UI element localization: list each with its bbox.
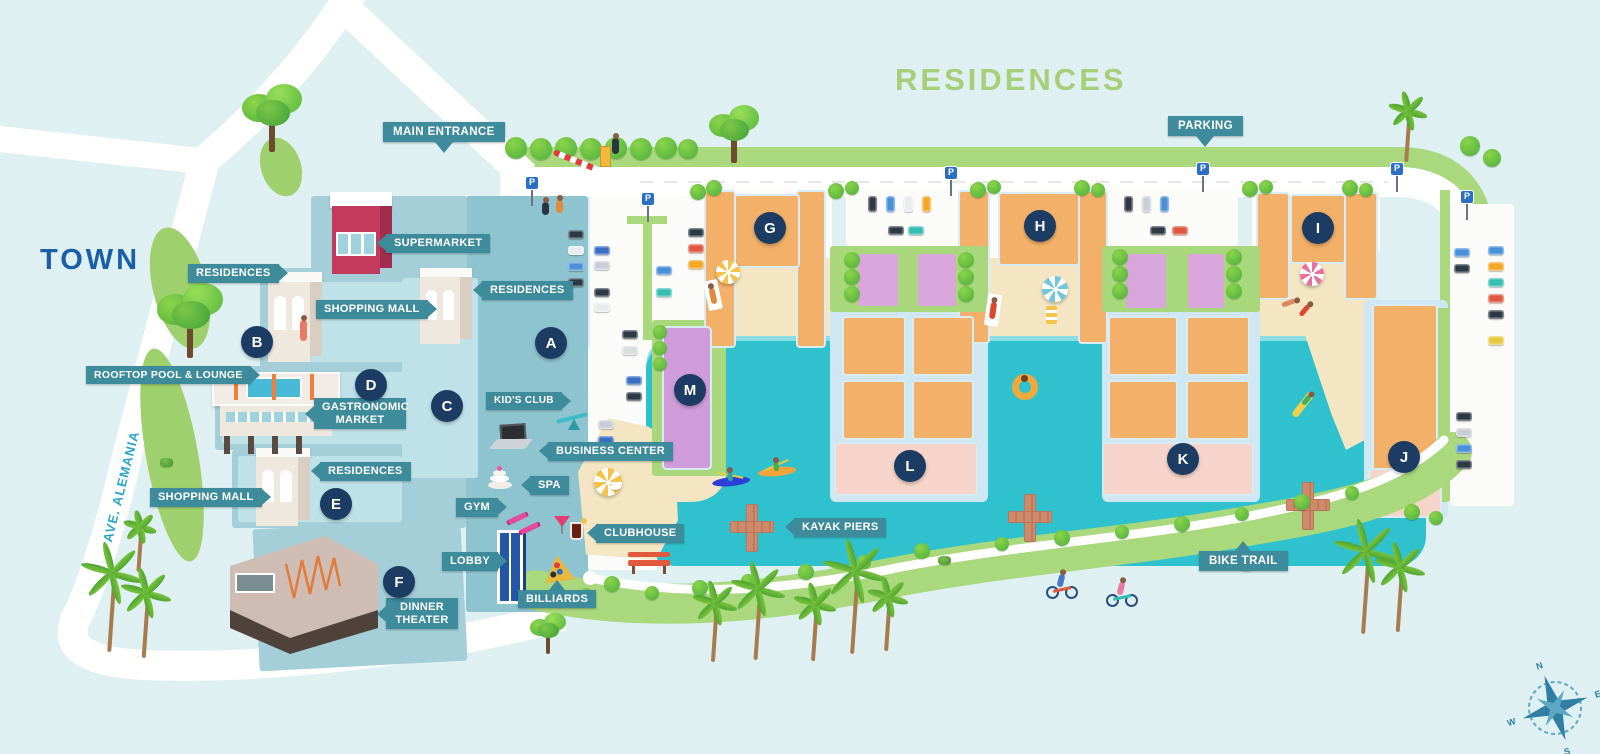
residence-building-l	[914, 318, 972, 374]
residence-building-k	[1188, 382, 1248, 438]
bush-icon	[1112, 249, 1128, 265]
bush-icon	[844, 252, 860, 268]
cyclist-icon	[1106, 584, 1140, 610]
main-entrance-flag: MAIN ENTRANCE	[383, 122, 505, 142]
bush-icon	[1112, 283, 1128, 299]
tree-icon	[709, 105, 760, 165]
parking-sign: P	[641, 192, 655, 222]
bush-icon	[958, 252, 974, 268]
spa-icon	[488, 466, 514, 490]
marker-h: H	[1024, 210, 1056, 242]
bush-icon	[530, 138, 552, 160]
marker-c: C	[431, 390, 463, 422]
bush-icon	[604, 576, 620, 592]
town-label: TOWN	[40, 244, 140, 277]
seagull-icon	[610, 484, 620, 490]
beach-umbrella-icon	[1042, 276, 1068, 302]
residence-building-l	[914, 382, 972, 438]
bush-icon	[1294, 494, 1310, 510]
car-icon	[868, 196, 877, 212]
beach-umbrella-icon	[716, 260, 740, 284]
grass-icon	[938, 556, 951, 565]
bush-icon	[1112, 266, 1128, 282]
car-icon	[656, 288, 672, 297]
label-kayak-piers: KAYAK PIERS	[794, 518, 886, 537]
bush-icon	[1226, 266, 1242, 282]
palm-tree-icon	[1372, 560, 1428, 634]
bush-icon	[1074, 180, 1090, 196]
car-icon	[594, 288, 610, 297]
pool-deck	[858, 254, 898, 306]
bush-icon	[1259, 180, 1273, 194]
car-icon	[904, 196, 913, 212]
bush-icon	[1345, 486, 1359, 500]
car-icon	[688, 228, 704, 237]
compass-w: W	[1506, 716, 1517, 728]
residence-building-i	[1258, 194, 1288, 298]
marker-l: L	[894, 450, 926, 482]
car-icon	[1488, 278, 1504, 287]
car-icon	[688, 260, 704, 269]
car-icon	[1488, 262, 1504, 271]
business-center-icon	[496, 424, 536, 454]
car-icon	[1456, 428, 1472, 437]
bush-icon	[828, 183, 844, 199]
car-icon	[1488, 246, 1504, 255]
parking-flag: PARKING	[1168, 116, 1243, 136]
bush-icon	[1054, 530, 1070, 546]
residence-building-k	[1110, 318, 1176, 374]
bush-icon	[1226, 283, 1242, 299]
car-icon	[922, 196, 931, 212]
label-lobby: LOBBY	[442, 552, 498, 571]
parking-sign: P	[1460, 190, 1474, 220]
bush-icon	[914, 543, 930, 559]
cyclist-icon	[1046, 576, 1080, 602]
marker-b: B	[241, 326, 273, 358]
parking-divider	[643, 222, 652, 340]
label-business-center: BUSINESS CENTER	[548, 442, 673, 461]
kayak-pier	[730, 504, 774, 552]
parking-lot-gh	[846, 188, 958, 246]
car-icon	[598, 420, 614, 429]
car-icon	[1160, 196, 1169, 212]
car-icon	[1150, 226, 1166, 235]
compass-rose: N E S W	[1507, 660, 1600, 754]
marker-m: M	[674, 374, 706, 406]
tree-icon	[242, 84, 302, 154]
car-icon	[1456, 460, 1472, 469]
bush-icon	[678, 139, 698, 159]
person-icon	[612, 138, 619, 154]
bush-icon	[653, 341, 667, 355]
marker-d: D	[355, 369, 387, 401]
marker-j: J	[1388, 441, 1420, 473]
bush-icon	[958, 286, 974, 302]
car-icon	[1142, 196, 1151, 212]
bush-icon	[1460, 136, 1480, 156]
bush-icon	[1359, 183, 1373, 197]
bike-trail-flag: BIKE TRAIL	[1199, 551, 1288, 571]
label-clubhouse: CLUBHOUSE	[596, 524, 684, 543]
car-icon	[1124, 196, 1133, 212]
lounge-chair-icon	[1046, 306, 1057, 324]
label-rooftop-pool-lounge: ROOFTOP POOL & LOUNGE	[86, 366, 251, 384]
bush-icon	[1342, 180, 1358, 196]
bush-icon	[1429, 511, 1443, 525]
palm-tree-icon	[1386, 104, 1430, 164]
car-icon	[622, 346, 638, 355]
label-dinner-theater: DINNER THEATER	[386, 598, 458, 629]
car-icon	[568, 262, 584, 271]
bush-icon	[995, 537, 1009, 551]
parking-sign: P	[1390, 162, 1404, 192]
bush-icon	[798, 564, 814, 580]
bush-icon	[970, 182, 986, 198]
bush-icon	[1404, 504, 1420, 520]
parking-sign: P	[525, 176, 539, 206]
bush-icon	[645, 586, 659, 600]
beach-umbrella-icon	[1300, 262, 1324, 286]
marker-i: I	[1302, 212, 1334, 244]
parking-divider	[1440, 190, 1450, 318]
residence-building-k	[1188, 318, 1248, 374]
bush-icon	[844, 269, 860, 285]
car-icon	[626, 376, 642, 385]
kayak-pier	[1008, 494, 1052, 542]
kids-club-icon	[556, 408, 590, 432]
label-spa: SPA	[530, 476, 569, 495]
beach-umbrella-icon	[594, 468, 622, 496]
bush-icon	[845, 181, 859, 195]
parking-sign: P	[944, 166, 958, 196]
gym-icon	[508, 512, 540, 538]
car-icon	[886, 196, 895, 212]
bush-icon	[580, 138, 602, 160]
car-icon	[568, 230, 584, 239]
bush-icon	[1235, 507, 1249, 521]
bush-icon	[958, 269, 974, 285]
tree-icon	[530, 613, 566, 655]
swim-ring	[1012, 374, 1038, 400]
car-icon	[1488, 310, 1504, 319]
label-gym: GYM	[456, 498, 498, 517]
bench-icon	[628, 552, 670, 574]
bush-icon	[1226, 249, 1242, 265]
car-icon	[908, 226, 924, 235]
bush-icon	[655, 137, 677, 159]
residence-building-k	[1110, 382, 1176, 438]
bush-icon	[1115, 525, 1129, 539]
supermarket-building	[330, 192, 392, 276]
label-gastronomic-market: GASTRONOMIC MARKET	[314, 398, 406, 429]
person-icon	[542, 202, 549, 215]
marker-g: G	[754, 212, 786, 244]
tree-icon	[157, 283, 223, 360]
palm-tree-icon	[118, 586, 174, 660]
bush-icon	[706, 180, 722, 196]
compass-n: N	[1535, 660, 1544, 672]
parking-sign: P	[1196, 162, 1210, 192]
dinner-theater-building	[228, 534, 380, 654]
car-icon	[1456, 444, 1472, 453]
bush-icon	[844, 286, 860, 302]
resort-map: { "map": { "title": "RESIDENCES", "town"…	[0, 0, 1600, 754]
gate-booth	[600, 146, 611, 167]
car-icon	[1456, 412, 1472, 421]
residences-building-b	[268, 272, 322, 362]
label-residences-b: RESIDENCES	[188, 264, 279, 283]
car-icon	[622, 330, 638, 339]
marker-a: A	[535, 327, 567, 359]
label-shopping-mall-e: SHOPPING MALL	[150, 488, 262, 507]
car-icon	[656, 266, 672, 275]
residence-building-i	[1346, 194, 1376, 298]
pool-deck	[918, 254, 956, 306]
car-icon	[1488, 336, 1504, 345]
compass-s: S	[1563, 746, 1572, 754]
car-icon	[594, 246, 610, 255]
residence-building-l	[844, 318, 904, 374]
label-kids-club: KID'S CLUB	[486, 392, 562, 410]
pool-deck	[1126, 254, 1166, 308]
label-residences-e: RESIDENCES	[320, 462, 411, 481]
car-icon	[594, 261, 610, 270]
marker-k: K	[1167, 443, 1199, 475]
car-icon	[1454, 248, 1470, 257]
bush-icon	[987, 180, 1001, 194]
pool-deck	[1188, 254, 1224, 308]
bush-icon	[1174, 516, 1190, 532]
residence-building-g	[798, 192, 824, 346]
car-icon	[1454, 264, 1470, 273]
car-icon	[1488, 294, 1504, 303]
palm-tree-icon	[865, 590, 911, 653]
label-residences-c: RESIDENCES	[482, 281, 573, 300]
car-icon	[1172, 226, 1188, 235]
bush-icon	[690, 184, 706, 200]
label-shopping-mall-b: SHOPPING MALL	[316, 300, 428, 319]
person-icon	[300, 320, 307, 341]
bush-icon	[1242, 181, 1258, 197]
bush-icon	[653, 325, 667, 339]
compass-e: E	[1593, 688, 1600, 699]
person-icon	[556, 200, 563, 213]
label-billiards: BILLIARDS	[518, 590, 596, 608]
car-icon	[688, 244, 704, 253]
marker-e: E	[320, 488, 352, 520]
marker-f: F	[383, 566, 415, 598]
bush-icon	[653, 357, 667, 371]
car-icon	[888, 226, 904, 235]
residence-building-l	[844, 382, 904, 438]
bush-icon	[630, 138, 652, 160]
bush-icon	[692, 580, 708, 596]
residences-title: RESIDENCES	[895, 62, 1127, 98]
residences-building-e	[256, 448, 310, 526]
label-supermarket: SUPERMARKET	[386, 234, 490, 253]
car-icon	[626, 392, 642, 401]
grass-icon	[160, 458, 173, 467]
bush-icon	[505, 137, 527, 159]
car-icon	[594, 303, 610, 312]
bush-icon	[1091, 183, 1105, 197]
bush-icon	[1483, 149, 1501, 167]
palm-tree-icon	[728, 582, 788, 662]
car-icon	[568, 246, 584, 255]
